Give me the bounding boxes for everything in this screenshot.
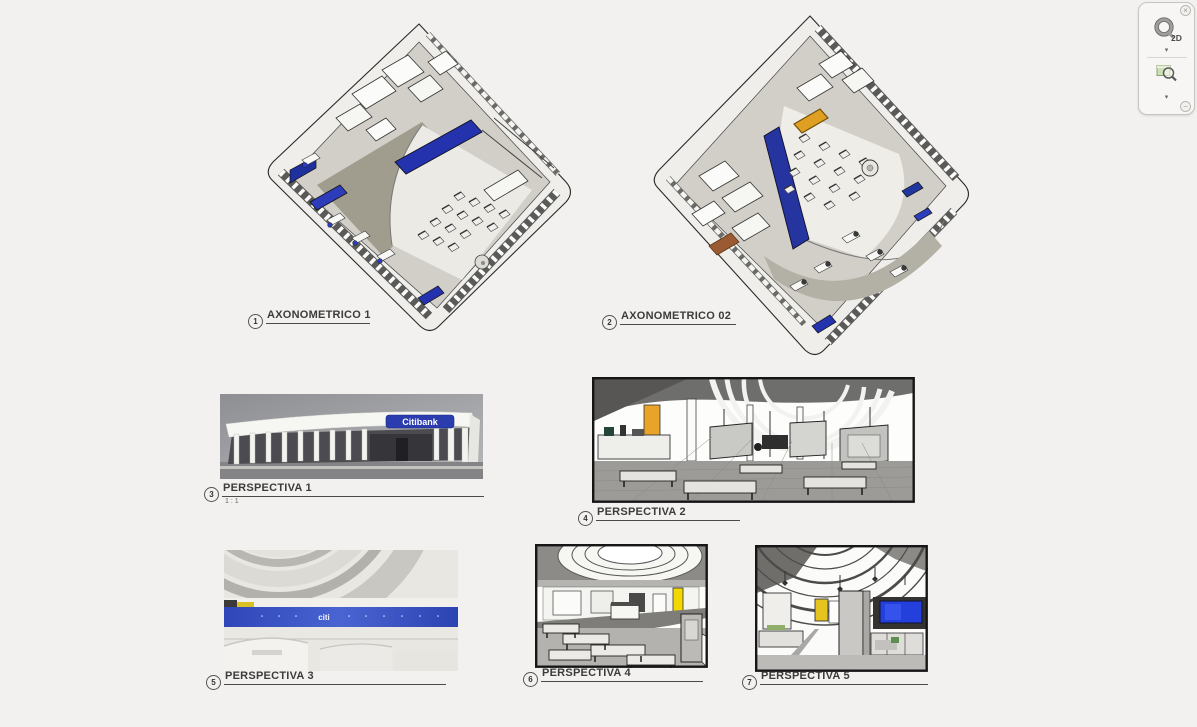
view-title-text: AXONOMETRICO 1 — [266, 309, 370, 324]
revit-sheet-canvas[interactable]: { "app": { "background_color": "#f2f1ef"… — [0, 0, 1197, 727]
view-title-perspectiva-2[interactable]: 4 PERSPECTIVA 2 — [578, 506, 740, 526]
perspectiva-1-drawing: Citibank — [220, 394, 483, 479]
view-title-text: PERSPECTIVA 3 — [224, 670, 446, 685]
steering-wheel-2d-icon: 2D — [1152, 17, 1182, 43]
wheel-2d-badge: 2D — [1171, 33, 1182, 43]
zoom-region-icon — [1155, 62, 1179, 84]
view-title-perspectiva-3[interactable]: 5 PERSPECTIVA 3 — [206, 670, 446, 690]
view-number-bubble: 2 — [602, 315, 617, 330]
view-title-perspectiva-4[interactable]: 6 PERSPECTIVA 4 — [523, 667, 703, 687]
view-number-bubble: 5 — [206, 675, 221, 690]
viewport-perspectiva-2[interactable] — [592, 377, 915, 503]
viewport-perspectiva-4[interactable] — [535, 544, 708, 668]
view-title-axonometrico-1[interactable]: 1 AXONOMETRICO 1 — [248, 309, 370, 329]
view-number-bubble: 4 — [578, 511, 593, 526]
view-title-text: PERSPECTIVA 5 — [760, 670, 928, 685]
view-title-text: PERSPECTIVA 2 — [596, 506, 740, 521]
viewport-axonometrico-1[interactable] — [232, 10, 584, 336]
wheel-options-caret[interactable]: ▾ — [1165, 47, 1169, 54]
viewport-perspectiva-5[interactable] — [755, 545, 928, 672]
navbar-divider — [1147, 57, 1187, 58]
view-number-bubble: 7 — [742, 675, 757, 690]
navigation-bar: × 2D ▾ ▾ − — [1138, 2, 1195, 115]
zoom-region-button[interactable] — [1153, 61, 1181, 88]
axonometrico-1-drawing — [232, 10, 584, 336]
zoom-options-caret[interactable]: ▾ — [1165, 94, 1169, 101]
steering-wheel-2d-button[interactable]: 2D — [1150, 16, 1184, 47]
citi-band-text: citi — [318, 613, 330, 622]
perspectiva-4-drawing — [535, 544, 708, 668]
view-title-axonometrico-02[interactable]: 2 AXONOMETRICO 02 — [602, 310, 736, 330]
view-number-bubble: 6 — [523, 672, 538, 687]
navbar-collapse-button[interactable]: − — [1180, 101, 1191, 112]
citibank-sign-text: Citibank — [402, 417, 438, 427]
viewport-perspectiva-1[interactable]: Citibank — [220, 394, 483, 479]
view-title-text: PERSPECTIVA 1 — [222, 482, 484, 497]
view-title-text: PERSPECTIVA 4 — [541, 667, 703, 682]
view-number-bubble: 1 — [248, 314, 263, 329]
view-title-perspectiva-1[interactable]: 3 PERSPECTIVA 1 1 : 1 — [204, 482, 484, 505]
navbar-close-button[interactable]: × — [1180, 5, 1191, 16]
view-title-text: AXONOMETRICO 02 — [620, 310, 736, 325]
perspectiva-3-drawing: citi — [224, 550, 458, 671]
view-scale-text: 1 : 1 — [222, 497, 484, 505]
viewport-perspectiva-3[interactable]: citi — [224, 550, 458, 671]
perspectiva-2-drawing — [592, 377, 915, 503]
view-title-perspectiva-5[interactable]: 7 PERSPECTIVA 5 — [742, 670, 928, 690]
perspectiva-5-drawing — [755, 545, 928, 672]
view-number-bubble: 3 — [204, 487, 219, 502]
